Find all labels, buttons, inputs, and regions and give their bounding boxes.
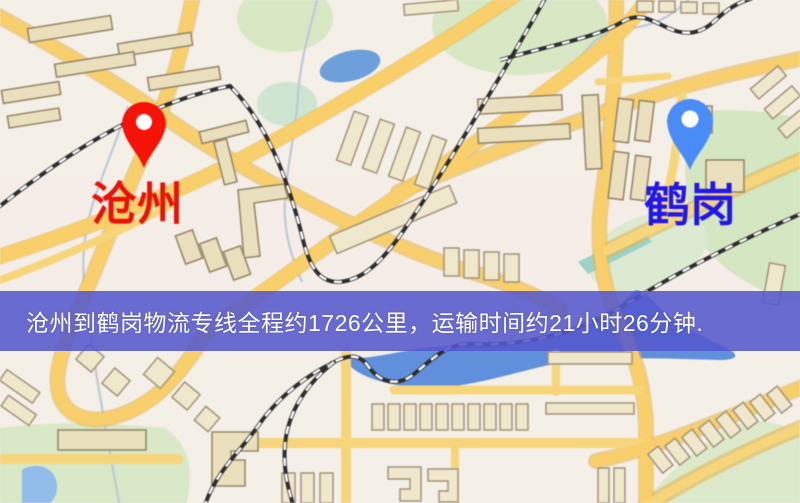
map-screenshot: 沧州 鹤岗 沧州到鹤岗物流专线全程约1726公里，运输时间约21小时26分钟. — [0, 0, 800, 503]
route-info-text: 沧州到鹤岗物流专线全程约1726公里，运输时间约21小时26分钟. — [0, 304, 703, 338]
destination-pin-hole — [682, 111, 699, 128]
destination-label: 鹤岗 — [644, 180, 736, 231]
origin-pin-hole — [136, 114, 152, 130]
route-info-banner: 沧州到鹤岗物流专线全程约1726公里，运输时间约21小时26分钟. — [0, 291, 800, 351]
origin-label: 沧州 — [91, 179, 183, 230]
map-canvas[interactable]: 沧州 鹤岗 — [0, 0, 800, 503]
